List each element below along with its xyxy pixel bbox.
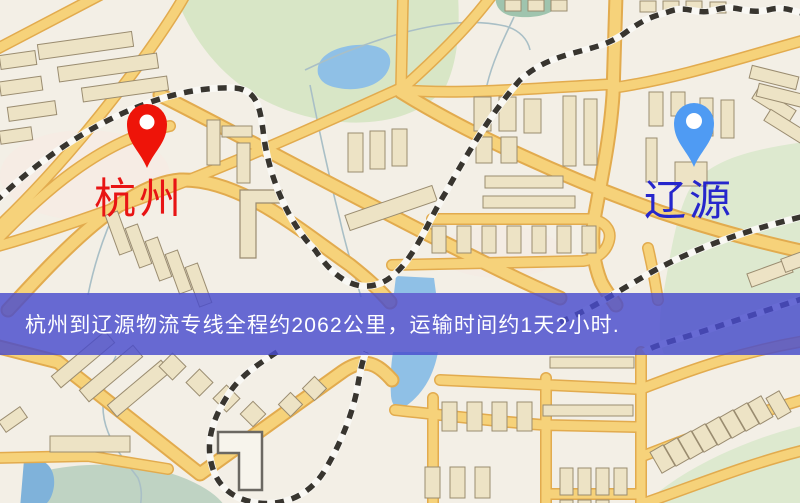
map-image: 杭州 辽源 (0, 0, 800, 503)
origin-pin-hole (140, 115, 155, 130)
route-info-text: 杭州到辽源物流专线全程约2062公里，运输时间约1天2小时. (25, 309, 620, 339)
route-info-banner: 杭州到辽源物流专线全程约2062公里，运输时间约1天2小时. (0, 293, 800, 355)
destination-pin-hole (686, 113, 702, 129)
destination-city-label: 辽源 (644, 179, 734, 225)
map-canvas: 杭州 辽源 杭州到辽源物流专线全程约2062公里，运输时间约1天2小时. (0, 0, 800, 503)
origin-city-label: 杭州 (94, 176, 184, 223)
